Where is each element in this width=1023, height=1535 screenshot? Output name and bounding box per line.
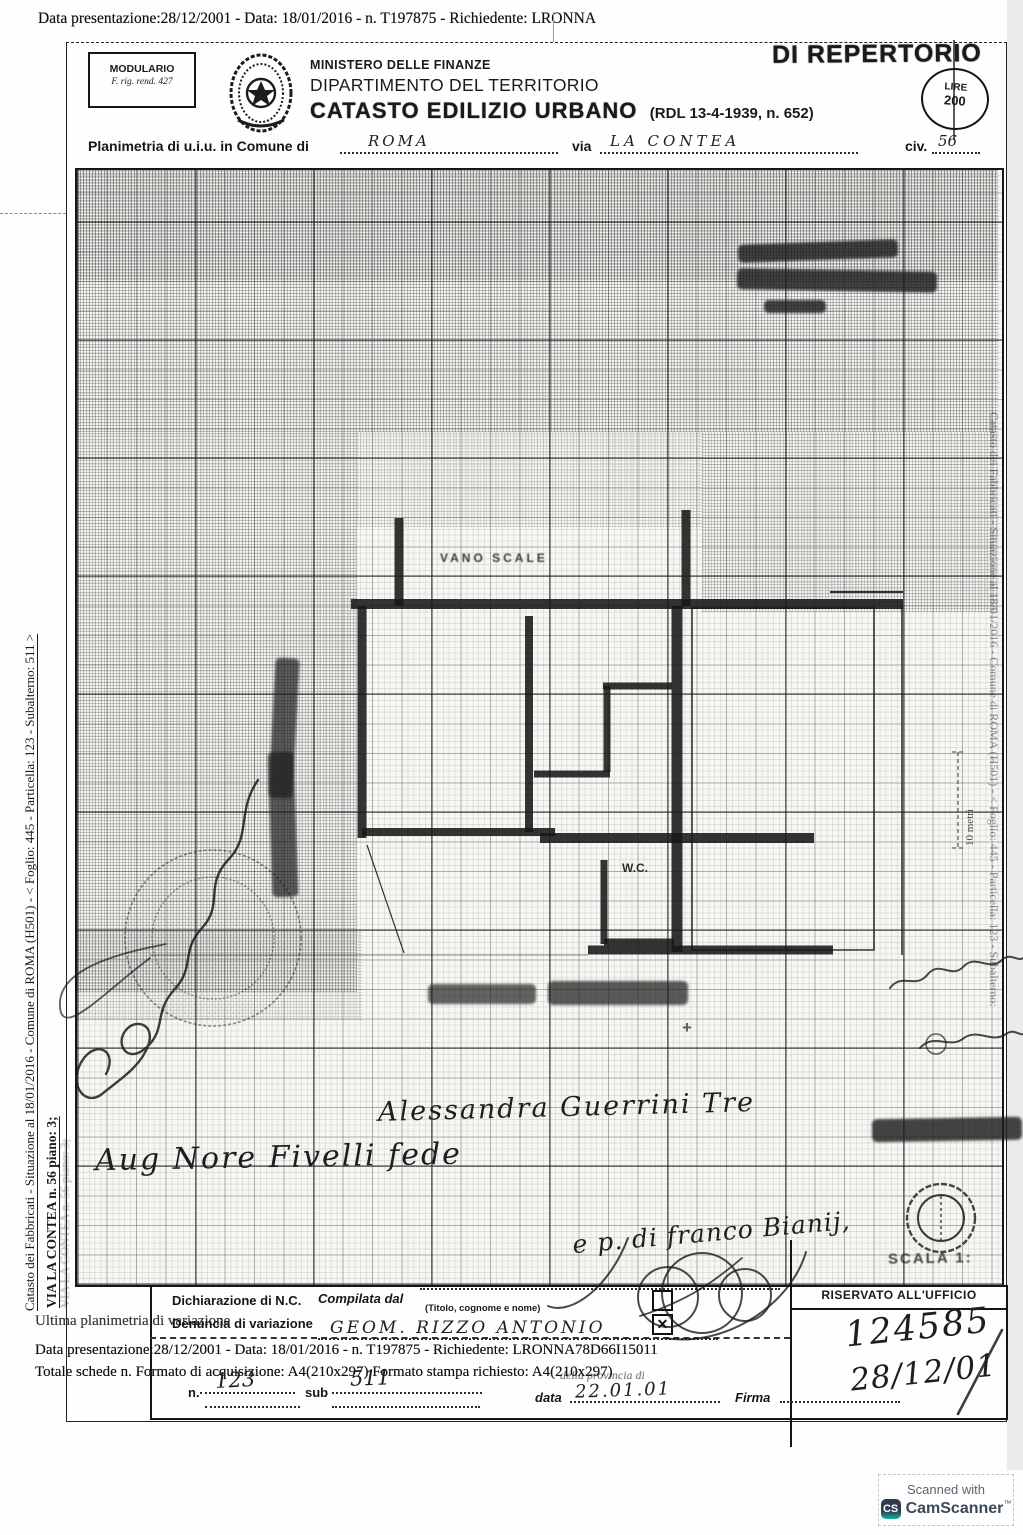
camscanner-cs-icon: CS (881, 1499, 901, 1519)
camscanner-tm: ™ (1003, 1499, 1011, 1508)
camscanner-badge: Scanned with CS CamScanner ™ (878, 1474, 1014, 1526)
ink-overlay (0, 0, 1023, 1535)
camscanner-text: CamScanner (906, 1500, 1004, 1518)
scanned-document-page: Data presentazione:28/12/2001 - Data: 18… (0, 0, 1023, 1535)
scanned-with-text: Scanned with (907, 1482, 985, 1497)
